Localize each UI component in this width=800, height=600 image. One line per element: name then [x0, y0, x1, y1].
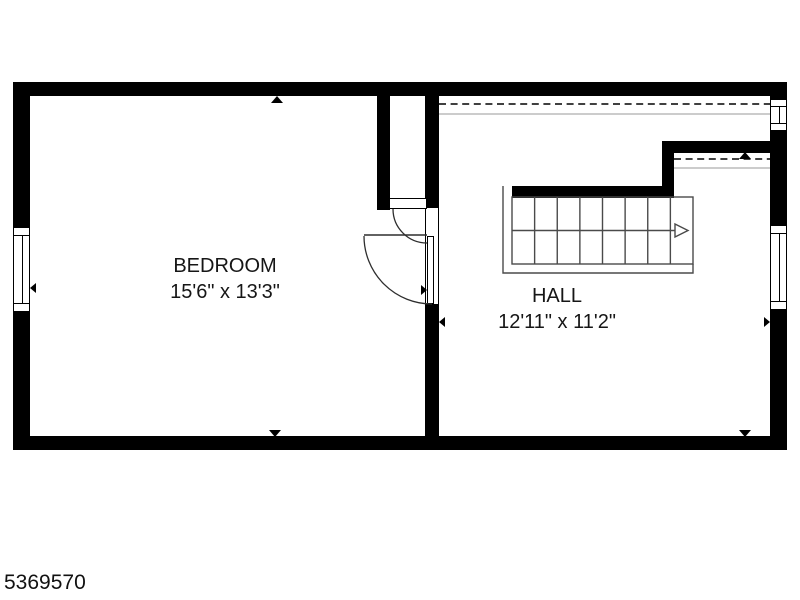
listing-id: 5369570 [4, 571, 86, 595]
dimension-marker-up-icon [739, 152, 751, 159]
dimension-marker-right-icon [764, 317, 770, 327]
dimension-marker-down-icon [739, 430, 751, 437]
room-dimensions: 12'11" x 11'2" [457, 309, 657, 335]
dimension-marker-left-icon [439, 317, 445, 327]
room-name: HALL [457, 283, 657, 309]
hall-label: HALL 12'11" x 11'2" [457, 283, 657, 335]
dimension-marker-down-icon [269, 430, 281, 437]
closet-door-swing-arc [393, 209, 427, 243]
floor-plan-lineart [0, 0, 800, 600]
room-dimensions: 15'6" x 13'3" [125, 279, 325, 305]
dimension-marker-right-icon [421, 285, 427, 295]
stair-direction-arrow-icon [675, 224, 688, 237]
stair-outer-outline [503, 186, 693, 273]
room-name: BEDROOM [125, 253, 325, 279]
staircase [503, 186, 693, 273]
bedroom-label: BEDROOM 15'6" x 13'3" [125, 253, 325, 305]
dimension-marker-left-icon [30, 283, 36, 293]
dimension-marker-up-icon [271, 96, 283, 103]
floor-plan: BEDROOM 15'6" x 13'3" HALL 12'11" x 11'2… [0, 0, 800, 600]
